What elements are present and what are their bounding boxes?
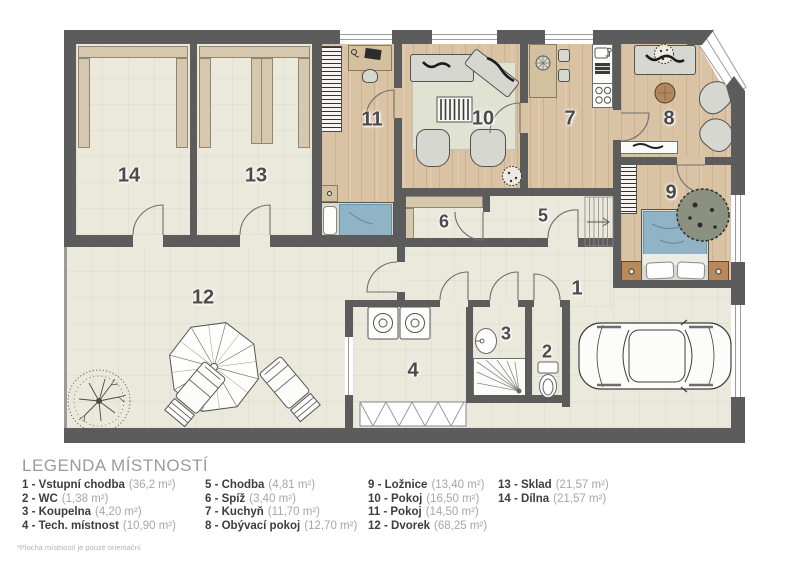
- wall: [394, 118, 402, 196]
- legend-column-3: 9 - Ložnice(13,40 m²) 10 - Pokoj(16,50 m…: [368, 479, 487, 533]
- legend-column-1: 1 - Vstupní chodba(36,2 m²) 2 - WC(1,38 …: [22, 479, 176, 533]
- wall: [613, 196, 621, 288]
- legend-item: 10 - Pokoj(16,50 m²): [368, 493, 487, 507]
- courtyard-fence: [64, 247, 67, 428]
- room-label-3: 3: [501, 324, 511, 345]
- desk: [348, 45, 392, 71]
- room-label-4: 4: [407, 360, 418, 383]
- legend-item: 14 - Dílna(21,57 m²): [498, 493, 609, 507]
- stove: [592, 83, 613, 108]
- bed-blanket: [339, 204, 392, 238]
- pillow: [323, 206, 337, 235]
- legend-item: 4 - Tech. místnost(10,90 m²): [22, 520, 176, 534]
- armchair: [470, 129, 506, 167]
- wall: [613, 157, 677, 165]
- door-threshold: [240, 235, 270, 247]
- window: [340, 30, 392, 44]
- wall: [483, 196, 490, 212]
- wall: [64, 30, 76, 247]
- wall: [520, 133, 528, 188]
- shower: [473, 358, 526, 398]
- desk-chair: [362, 69, 378, 83]
- wall: [394, 196, 406, 247]
- legend-item: 6 - Spíž(3,40 m²): [205, 493, 357, 507]
- workbench: [199, 46, 310, 58]
- wall: [518, 300, 534, 307]
- room-label-6: 6: [439, 212, 449, 233]
- bed-blanket: [643, 211, 707, 256]
- nightstand: [708, 261, 729, 282]
- wall: [731, 92, 745, 195]
- legend-item: 8 - Obývací pokoj(12,70 m²): [205, 520, 357, 534]
- legend-column-2: 5 - Chodba(4,81 m²) 6 - Spíž(3,40 m²) 7 …: [205, 479, 357, 533]
- legend-title: LEGENDA MÍSTNOSTÍ: [22, 456, 208, 476]
- room-label-10: 10: [472, 108, 494, 131]
- dining-table: [529, 44, 557, 98]
- pantry-shelf: [404, 196, 483, 208]
- wall: [466, 307, 473, 403]
- wall: [64, 428, 745, 443]
- window: [731, 195, 745, 262]
- door-threshold: [397, 262, 405, 292]
- shelf-strip: [298, 58, 310, 148]
- wall: [397, 292, 405, 307]
- shelf-strip: [199, 58, 211, 148]
- door-threshold: [548, 238, 578, 247]
- armchair: [416, 129, 450, 167]
- wall: [613, 44, 621, 110]
- floor-corridor-1b: [613, 288, 733, 428]
- nightstand: [621, 261, 642, 282]
- door-threshold: [613, 110, 621, 140]
- wall: [525, 307, 532, 403]
- wall: [270, 235, 405, 247]
- room-label-7: 7: [564, 108, 575, 131]
- room-label-13: 13: [245, 165, 267, 188]
- shelf-strip: [261, 58, 273, 144]
- floor-corridor-1d: [466, 403, 570, 428]
- floor-corridor-1c: [570, 307, 613, 428]
- wall: [731, 262, 745, 305]
- shelf-strip: [176, 58, 188, 148]
- pillow: [646, 261, 675, 279]
- nightstand: [321, 185, 338, 202]
- legend-item: 7 - Kuchyň(11,70 m²): [205, 506, 357, 520]
- legend-item: 12 - Dvorek(68,25 m²): [368, 520, 487, 534]
- wall: [394, 188, 621, 196]
- legend-item: 13 - Sklad(21,57 m²): [498, 479, 609, 493]
- wall: [483, 240, 490, 247]
- window: [345, 337, 353, 395]
- workbench: [78, 46, 188, 58]
- tv-stand: [620, 141, 678, 154]
- wardrobe: [321, 46, 342, 132]
- sofa: [410, 54, 474, 82]
- legend-item: 3 - Koupelna(4,20 m²): [22, 506, 176, 520]
- legend-item: 9 - Ložnice(13,40 m²): [368, 479, 487, 493]
- wall: [190, 44, 197, 235]
- wall: [392, 30, 432, 44]
- wall: [345, 300, 353, 337]
- wall: [312, 30, 322, 247]
- wall: [705, 157, 733, 165]
- wall: [468, 300, 490, 307]
- wall: [163, 235, 240, 247]
- window: [432, 30, 497, 44]
- wall: [613, 140, 621, 196]
- door-threshold: [394, 88, 402, 118]
- room-label-14: 14: [118, 165, 140, 188]
- wall: [593, 30, 706, 44]
- door-threshold: [677, 157, 705, 165]
- room-label-1: 1: [571, 278, 582, 301]
- wall: [64, 235, 133, 247]
- room-label-2: 2: [542, 342, 552, 363]
- chair: [558, 49, 570, 62]
- wall: [497, 30, 545, 44]
- wall: [613, 280, 733, 288]
- garage-door: [731, 305, 745, 397]
- shelf-strip: [78, 58, 90, 148]
- legend-footnote: *Plocha místností je pouze orientační: [17, 543, 141, 552]
- wall: [345, 395, 353, 428]
- legend-item: 1 - Vstupní chodba(36,2 m²): [22, 479, 176, 493]
- wall: [64, 30, 340, 44]
- wall: [562, 307, 570, 407]
- wall: [345, 300, 440, 307]
- door-threshold: [133, 235, 163, 247]
- room-label-12: 12: [192, 287, 214, 310]
- door-threshold: [490, 300, 518, 307]
- chair: [558, 69, 570, 82]
- door-threshold: [440, 300, 468, 307]
- wall: [520, 44, 528, 103]
- wall: [394, 238, 548, 247]
- door-threshold: [534, 300, 560, 307]
- wall: [397, 247, 405, 262]
- room-label-5: 5: [538, 206, 548, 227]
- room-label-11: 11: [361, 109, 382, 132]
- sofa: [634, 45, 696, 75]
- legend-item: 2 - WC(1,38 m²): [22, 493, 176, 507]
- legend-item: 5 - Chodba(4,81 m²): [205, 479, 357, 493]
- fridge: [595, 63, 610, 74]
- wall: [394, 44, 402, 88]
- legend-column-4: 13 - Sklad(21,57 m²) 14 - Dílna(21,57 m²…: [498, 479, 609, 506]
- legend-item: 11 - Pokoj(14,50 m²): [368, 506, 487, 520]
- door-threshold: [520, 103, 528, 133]
- wall: [560, 300, 570, 307]
- pillow: [677, 261, 706, 279]
- room-label-9: 9: [665, 182, 676, 205]
- wall: [466, 395, 570, 403]
- window: [545, 30, 593, 44]
- room-label-8: 8: [663, 108, 674, 131]
